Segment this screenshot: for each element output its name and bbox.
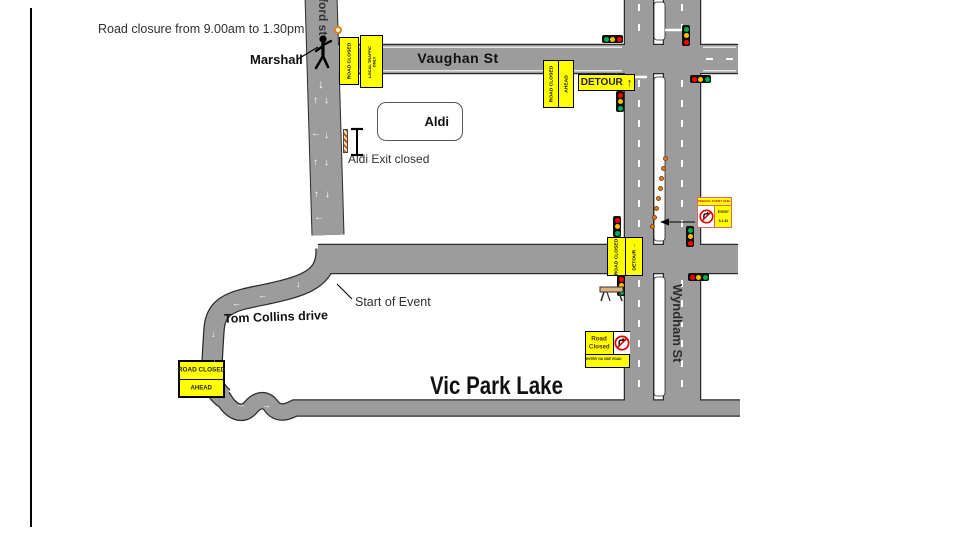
local-traffic-sign: LOCAL TRAFFICONLY	[360, 35, 383, 88]
vic-park-lake-label: Vic Park Lake	[430, 372, 563, 401]
vaughan-st-label: Vaughan St	[398, 50, 518, 66]
road-network	[0, 0, 960, 540]
road-closed-text: ROAD CLOSED	[346, 43, 352, 80]
start-of-event-label: Start of Event	[355, 295, 431, 309]
lane-arrow: ←	[314, 213, 324, 223]
road-closed-text: ROAD CLOSED	[178, 367, 225, 374]
detour-text: DETOUR	[581, 77, 623, 88]
lane-arrow: ↓	[324, 96, 329, 106]
road-closed-ahead-sign-vaughan: ROAD CLOSED AHEAD	[543, 60, 574, 108]
lane-arrow: ↓	[324, 131, 329, 141]
ahead-text: AHEAD	[191, 385, 212, 391]
cone-marker	[650, 224, 655, 229]
road-closed-detour-sign-middle: ROAD CLOSED DETOUR →	[607, 237, 643, 276]
closure-note: Road closure from 9.00am to 1.30pm	[98, 22, 304, 36]
marshall-label: Marshall	[250, 52, 303, 67]
event-cell-text: EVENT	[717, 211, 728, 215]
cone-marker	[663, 156, 668, 161]
event-cell-text: 9-1.30	[718, 219, 728, 223]
detour-up-arrow: ↑	[627, 77, 633, 89]
lane-arrow: ↑	[314, 190, 319, 200]
lane-arrow: ↓	[296, 280, 301, 289]
road-closed-text: ROAD CLOSED	[613, 238, 619, 275]
aldi-label: Aldi	[424, 114, 449, 129]
traffic-light	[690, 75, 711, 83]
cone-marker	[659, 176, 664, 181]
cone-marker	[661, 166, 666, 171]
lane-arrow: ↓	[324, 158, 329, 168]
closed-word: Closed	[589, 344, 610, 351]
traffic-light	[682, 25, 690, 46]
detour-rot-text: DETOUR →	[631, 243, 637, 270]
traffic-light	[688, 273, 709, 281]
cone-marker	[658, 186, 663, 191]
road-closed-ahead-sign-tom-collins: ROAD CLOSED AHEAD	[178, 360, 225, 398]
aldi-building: Aldi	[377, 102, 463, 141]
lane-arrow: ←	[311, 129, 321, 139]
lane-arrow: ↑	[313, 96, 318, 106]
road-closed-no-turn-sign: Road Closed ENTER VIA SIDE ROAD	[585, 331, 630, 368]
traffic-management-map: Road closure from 9.00am to 1.30pm Marsh…	[0, 0, 960, 540]
cone-marker	[656, 196, 661, 201]
road-closed-sign-marshal: ROAD CLOSED	[339, 37, 359, 85]
no-right-turn-icon	[613, 332, 630, 354]
lane-arrow: ←	[258, 291, 267, 300]
lane-arrow: →	[236, 400, 245, 409]
lane-arrow: ↓	[212, 358, 217, 367]
lane-arrow: →	[262, 401, 271, 410]
local-traffic-text: LOCAL TRAFFICONLY	[367, 46, 376, 78]
traffic-light	[686, 226, 694, 247]
enter-via-text: ENTER VIA SIDE ROAD	[586, 358, 622, 361]
ahead-text: AHEAD	[563, 75, 569, 93]
wyndham-st-label: Wyndham St	[670, 284, 685, 394]
special-event-no-turn-sign: SPECIAL EVENT 9AM-1.30PM EVENT 9-1.30	[697, 197, 732, 228]
cone-marker	[654, 206, 659, 211]
aldi-exit-barricade	[343, 129, 348, 153]
aldi-exit-ibeam-icon	[349, 127, 365, 157]
road-closed-text: ROAD CLOSED	[548, 66, 554, 103]
marshal-person-icon	[311, 34, 335, 76]
lane-arrow: ↓	[211, 330, 216, 339]
lane-arrow: ↓	[325, 190, 330, 200]
lane-arrow: ←	[232, 299, 241, 308]
road-word: Road	[592, 336, 608, 343]
event-strip-text: SPECIAL EVENT 9AM-1.30PM	[698, 200, 731, 203]
traffic-light	[602, 35, 623, 43]
detour-sign-vaughan: DETOUR ↑	[578, 74, 635, 91]
lane-arrow: ↓	[318, 78, 324, 90]
no-right-turn-icon	[698, 206, 714, 227]
marshal-position-marker	[334, 26, 342, 34]
traffic-light	[613, 216, 621, 237]
lane-arrow: ↑	[313, 158, 318, 168]
traffic-light	[616, 91, 624, 112]
cone-marker	[652, 215, 657, 220]
trestle-barricade-icon	[598, 285, 626, 303]
